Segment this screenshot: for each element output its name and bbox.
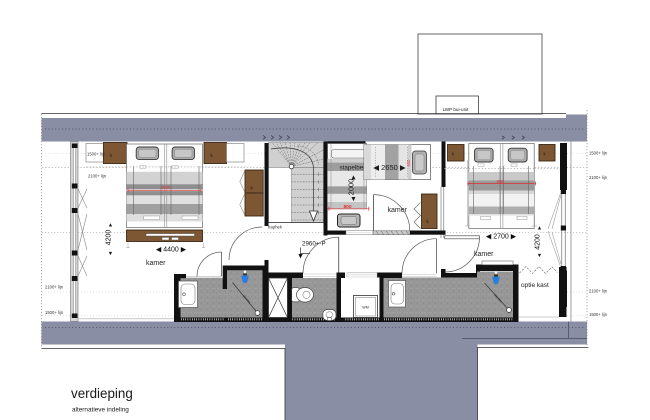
svg-text:LWP bui-unit: LWP bui-unit bbox=[443, 107, 470, 112]
svg-text:1500+ lijn: 1500+ lijn bbox=[589, 312, 608, 317]
svg-text:2100+ lijn: 2100+ lijn bbox=[589, 289, 608, 294]
svg-text:kamer: kamer bbox=[146, 260, 166, 267]
svg-text:traphek: traphek bbox=[268, 225, 283, 230]
svg-text:▼: ▼ bbox=[108, 251, 113, 257]
svg-text:▲: ▲ bbox=[537, 226, 542, 232]
svg-text:◀ 2650 ▶: ◀ 2650 ▶ bbox=[373, 163, 407, 172]
svg-text:◀ 2700 ▶: ◀ 2700 ▶ bbox=[486, 234, 517, 241]
svg-text:kamer: kamer bbox=[474, 251, 494, 258]
svg-text:1500+ lijn: 1500+ lijn bbox=[45, 310, 64, 315]
svg-text:2960+-P: 2960+-P bbox=[302, 241, 326, 248]
svg-text:◀ 4400 ▶: ◀ 4400 ▶ bbox=[156, 247, 187, 254]
svg-text:1500+ lijn: 1500+ lijn bbox=[87, 152, 106, 157]
svg-text:1500+ lijn: 1500+ lijn bbox=[589, 151, 608, 156]
svg-text:2100+ lijn: 2100+ lijn bbox=[45, 285, 64, 290]
svg-text:kamer: kamer bbox=[388, 207, 408, 214]
svg-text:2000: 2000 bbox=[347, 179, 356, 196]
svg-text:stapelbed: stapelbed bbox=[340, 165, 368, 172]
svg-text:optie kast: optie kast bbox=[521, 282, 549, 289]
svg-text:alternatieve indeling: alternatieve indeling bbox=[72, 407, 129, 414]
svg-text:1500: 1500 bbox=[161, 185, 171, 190]
svg-text:▲: ▲ bbox=[108, 223, 113, 229]
svg-text:▼: ▼ bbox=[537, 253, 542, 259]
svg-text:900: 900 bbox=[406, 159, 411, 167]
svg-text:▼: ▼ bbox=[350, 196, 357, 203]
svg-text:sl.douche: sl.douche bbox=[241, 266, 253, 270]
svg-text:4200: 4200 bbox=[106, 230, 113, 246]
svg-text:900: 900 bbox=[497, 179, 505, 184]
svg-text:4200: 4200 bbox=[535, 234, 542, 250]
svg-text:sl.douche: sl.douche bbox=[492, 267, 504, 271]
svg-text:2100+ lijn: 2100+ lijn bbox=[589, 175, 608, 180]
svg-text:2100+ lijn: 2100+ lijn bbox=[88, 174, 107, 179]
svg-text:800: 800 bbox=[343, 204, 351, 210]
svg-text:verdieping: verdieping bbox=[71, 386, 133, 401]
svg-text:WM: WM bbox=[362, 306, 368, 310]
